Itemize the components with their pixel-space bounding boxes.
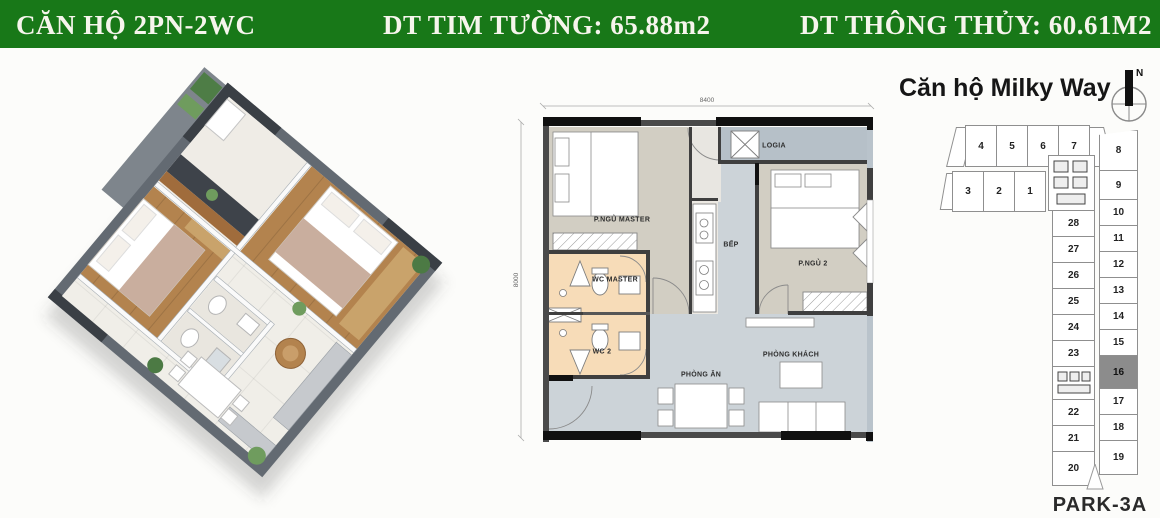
keyplan-unit-10: 10 <box>1099 199 1138 226</box>
keyplan-unit-12: 12 <box>1099 251 1138 278</box>
label-wc-2: WC 2 <box>593 349 612 356</box>
clear-area-label: DT THÔNG THỦY: 60.61M2 <box>800 0 1152 48</box>
keyplan-unit-19: 19 <box>1099 440 1138 475</box>
keyplan-unit-27: 27 <box>1052 236 1095 263</box>
wall-to-wall-area-label: DT TIM TƯỜNG: 65.88m2 <box>383 0 711 48</box>
keyplan-unit-4: 4 <box>965 125 997 167</box>
label-master-bedroom: P.NGỦ MASTER <box>594 217 650 224</box>
isometric-render-graphic <box>15 55 470 510</box>
keyplan-diagram: 4567 321 282726252423222120 891011121314… <box>895 60 1160 518</box>
keyplan-unit-17: 17 <box>1099 388 1138 415</box>
label-wc-master: WC MASTER <box>592 277 638 284</box>
keyplan-unit-15: 15 <box>1099 329 1138 356</box>
keyplan-unit-25: 25 <box>1052 288 1095 315</box>
label-dining-room: PHÒNG ĂN <box>681 372 721 379</box>
keyplan-unit-23: 23 <box>1052 340 1095 367</box>
label-living-room: PHÒNG KHÁCH <box>763 352 819 359</box>
keyplan-unit-28: 28 <box>1052 210 1095 237</box>
keyplan-notch <box>1086 464 1104 490</box>
keyplan-unit-21: 21 <box>1052 425 1095 452</box>
label-bedroom-2: P.NGỦ 2 <box>798 261 827 268</box>
keyplan-unit-14: 14 <box>1099 303 1138 330</box>
keyplan-unit-3: 3 <box>952 171 984 212</box>
keyplan-unit-22: 22 <box>1052 399 1095 426</box>
keyplan-unit-18: 18 <box>1099 414 1138 441</box>
keyplan-right-column: 8910111213141516171819 <box>1099 130 1137 474</box>
keyplan-unit-13: 13 <box>1099 277 1138 304</box>
floor-plan-graphic: 8400 8000 <box>503 86 888 478</box>
keyplan-left-column: 282726252423222120 <box>1052 210 1094 485</box>
keyplan-panel: Căn hộ Milky Way N 4567 321 282726252423… <box>895 60 1160 518</box>
width-dimension: 8400 <box>700 97 715 104</box>
keyplan-unit-2: 2 <box>983 171 1015 212</box>
header-bar: CĂN HỘ 2PN-2WC DT TIM TƯỜNG: 65.88m2 DT … <box>0 0 1160 48</box>
stair-core-icon <box>1052 366 1095 400</box>
height-dimension: 8000 <box>513 272 520 287</box>
keyplan-unit-8: 8 <box>1099 130 1138 171</box>
tower-label: PARK-3A <box>1035 494 1160 517</box>
keyplan-unit-11: 11 <box>1099 225 1138 252</box>
apartment-type-label: CĂN HỘ 2PN-2WC <box>16 0 255 48</box>
keyplan-unit-16: 16 <box>1099 355 1138 389</box>
elevator-core-icon <box>1048 155 1095 211</box>
label-kitchen: BẾP <box>723 242 738 249</box>
keyplan-unit-5: 5 <box>996 125 1028 167</box>
keyplan-unit-1: 1 <box>1014 171 1046 212</box>
label-logia: LOGIA <box>762 143 786 150</box>
keyplan-second-row: 321 <box>952 171 1045 211</box>
isometric-render <box>15 55 470 510</box>
floor-plan: 8400 8000 <box>503 86 888 478</box>
brochure-page: { "header": { "apartment_type": "CĂN HỘ … <box>0 0 1160 518</box>
keyplan-unit-24: 24 <box>1052 314 1095 341</box>
keyplan-unit-26: 26 <box>1052 262 1095 289</box>
keyplan-unit-9: 9 <box>1099 170 1138 200</box>
